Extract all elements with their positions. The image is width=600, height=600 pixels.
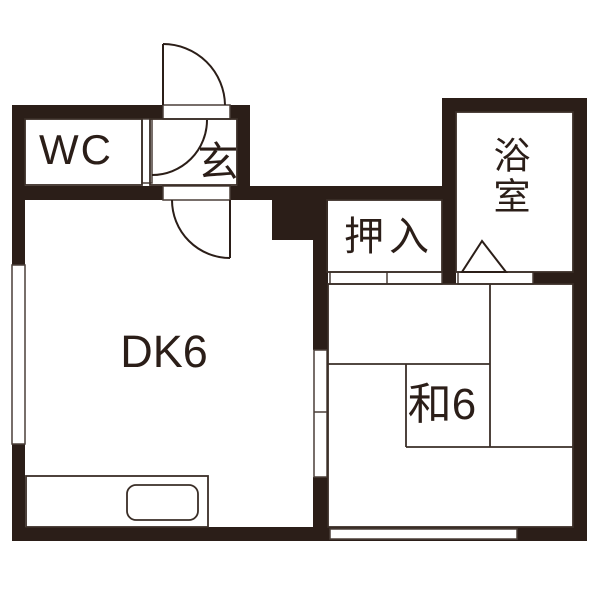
room-label-washitsu: 和6 <box>390 383 494 427</box>
room-label-bathroom: 浴室 <box>487 136 527 228</box>
floor-plan: WC 玄 浴室 押入 DK6 和6 <box>0 0 600 600</box>
window-left <box>12 265 25 444</box>
closet-sliding-doors <box>330 272 442 284</box>
bathroom-folding-door-triangle <box>462 241 506 272</box>
wall-dk-corner-block <box>272 200 328 240</box>
entrance-door-arc <box>163 44 225 105</box>
wall-dk-washitsu-upper <box>313 240 328 350</box>
room-label-entrance: 玄 <box>196 142 240 183</box>
dk-door-arc <box>172 200 230 258</box>
room-label-closet: 押入 <box>337 217 441 257</box>
bathroom-door-track <box>458 272 533 284</box>
entrance-doorway-opening <box>163 105 230 119</box>
dk-washitsu-sliding-doors <box>314 350 327 477</box>
wall-dk-washitsu-lower <box>313 477 328 541</box>
kitchen-sink <box>127 485 198 520</box>
room-label-wc: WC <box>20 129 132 171</box>
wall-bathroom-bottom-right <box>533 272 573 284</box>
dk-doorway-opening <box>163 186 230 200</box>
floor-plan-drawing <box>0 0 600 600</box>
room-label-dk: DK6 <box>102 329 226 374</box>
wall-bathroom-top <box>442 98 587 112</box>
wall-middle-horizontal <box>12 186 456 200</box>
wall-outer-right <box>573 98 587 541</box>
window-bottom <box>330 529 517 539</box>
